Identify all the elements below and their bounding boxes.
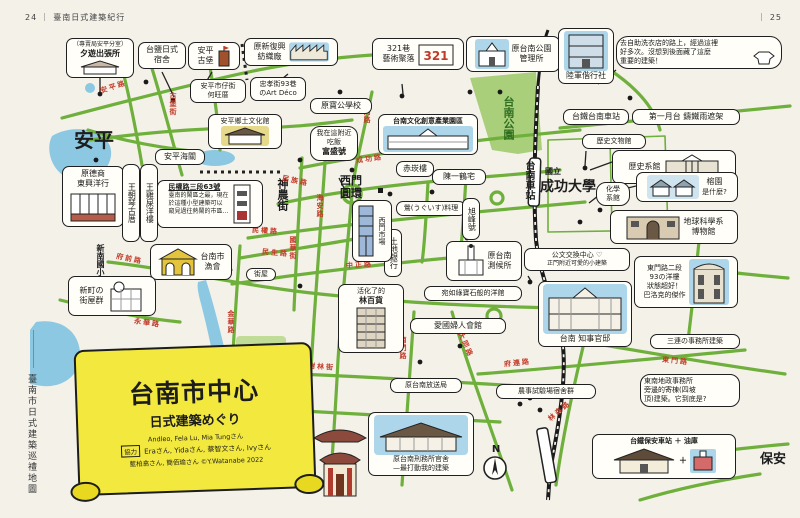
area-label-anping: 安平: [74, 124, 114, 153]
magistrate-residence-illustration: [543, 284, 627, 334]
observatory-tower-illustration: [457, 244, 485, 278]
callout-platform-canopy: 第一月台 鑄鐵雨遮架: [632, 109, 740, 125]
callout-shinmachi-shophouses: 新町の 街屋群: [68, 276, 156, 316]
map-title-banner: 台南市中心 日式建築めぐり Andleo, Fela Lu, Mia Tungさ…: [74, 342, 317, 496]
callout-minquan-63: 民權路三段63號 臺南的鬧區之最，現在 於這種小型建築可以 窺見過往熱鬧的市區…: [157, 180, 263, 228]
page-number-left: 24: [25, 13, 37, 22]
callout-fusheng-hao: 我在這附近 吃飯 富盛號: [310, 126, 358, 161]
prison-dorm-illustration: [374, 415, 468, 455]
callout-history-artifacts-hall: 歷史文物館: [582, 134, 646, 149]
road-label-jinhua-rd: 金華路: [226, 310, 236, 334]
callout-army-club: 陸軍偕行社: [558, 28, 614, 84]
book-title: 臺南日式建築紀行: [53, 13, 125, 22]
sawtooth-factory-illustration: [289, 41, 329, 63]
callout-chikan-tower: 赤崁樓: [396, 161, 434, 177]
callout-xiyou-outpost: （專賣局安平分室） 夕遊出張所: [66, 38, 134, 78]
compass-rose-icon: [482, 455, 508, 481]
army-club-illustration: [564, 31, 608, 71]
fishery-hall-illustration: [158, 247, 198, 277]
folk-museum-illustration: [221, 126, 269, 146]
road-label-haian-rd: 海安路: [315, 194, 325, 218]
callout-ximen-market: 西門市場: [352, 200, 392, 262]
compass-n-label: N: [482, 444, 510, 455]
colonnade-illustration: [68, 190, 118, 224]
map-title: 台南市中心: [128, 370, 259, 411]
road-label-guohua-st: 國華街: [288, 236, 298, 260]
ximen-market-illustration: [358, 205, 374, 257]
spine-caption: 臺南市日式建築巡禮地圖: [25, 374, 38, 495]
callout-anping-fort: 安平 古堡: [188, 42, 240, 70]
callout-anping-folk-museum: 安平鄉土文化館: [208, 114, 282, 149]
callout-tra-tainan-station: 台鐵台南車站: [563, 109, 629, 125]
coop-label: 協力: [121, 444, 140, 457]
svg-text:321: 321: [423, 49, 448, 63]
header-divider: ｜: [41, 13, 50, 22]
callout-land-office-note: 東南地政事務所 旁邊的寄棟(四坡 頂)建築。它到底是?: [640, 374, 740, 407]
callout-anping-customs: 安平海關: [155, 149, 205, 165]
callout-wang-chaoqin-house: 王朝琴古厝: [122, 164, 140, 242]
callout-textile-factory: 原新復興 紡織廠: [244, 38, 338, 66]
park-office-illustration: [475, 39, 509, 69]
callout-hayashi-department-store: 活化了的 林百貨: [338, 284, 404, 353]
callout-hewang-house: 安平市仔街 何旺厝: [190, 79, 246, 103]
area-label-tainan-station: 台南車站: [521, 160, 536, 200]
callout-agri-dorms: 農事試驗場宿舍群: [496, 384, 596, 399]
oil-depot-illustration: [690, 449, 716, 473]
station-house-illustration: [612, 446, 676, 476]
callout-park-office: 原台南公園 管理所: [466, 36, 560, 72]
callout-taiyan-dorm: 台鹽日式 宿舍: [138, 42, 186, 69]
road-label-gubao-st: 古堡街: [168, 92, 178, 116]
callout-street-house: 街屋: [246, 268, 276, 281]
compass: N: [482, 444, 510, 481]
callout-chen-yihe-house: 陳一鶴宅: [432, 169, 486, 185]
shirt-doodle-icon: [753, 51, 775, 65]
callout-laundry-note: 去自助洗衣店的路上，經過這裡 好多次。沒想到後面藏了這麼 重要的建築！: [616, 36, 782, 69]
corner-building-illustration: [107, 279, 145, 313]
callout-earth-science-museum: 地球科學系 博物館: [610, 210, 738, 244]
callout-document-exchange: 公文交換中心 ♡ 正門附近可愛的小建築: [524, 248, 630, 271]
spine-rule: [33, 330, 34, 368]
callout-tait-merchant-house: 原德商 東興洋行: [62, 166, 124, 227]
callout-prison-dorm: 原台南刑務所官舍 —最打動我的建築: [368, 412, 474, 476]
book-spread-map-page: 24 ｜ 臺南日式建築紀行 ｜ 25 臺南市日式建築巡禮地圖 安平 神農街 西門…: [0, 0, 800, 518]
page-header-right: ｜ 25: [757, 12, 782, 23]
callout-xufeng-hao: 旭峰號: [462, 198, 480, 240]
gate-321-illustration: 321: [418, 41, 454, 67]
callout-wang-jishi-mansion: 王雞屎洋樓: [140, 164, 158, 242]
callout-chemistry-hall: 化學 系館: [596, 182, 630, 206]
page-header-left: 24 ｜ 臺南日式建築紀行: [25, 12, 125, 23]
page-number-right: 25: [770, 13, 782, 22]
callout-patriotic-womens-hall: 愛國婦人會館: [410, 318, 506, 334]
area-label-baoan: 保安: [760, 448, 786, 467]
callout-broadcast-bureau: 原台南放送局: [390, 378, 462, 393]
baroque-facade-illustration: [689, 259, 729, 305]
callout-baoan-station: 台鐵保安車站 ＋ 油庫 ＋: [592, 434, 736, 479]
callout-banyan-garden: 榕園 是什麼?: [636, 172, 738, 202]
area-label-xinnan-school: 新南國小: [95, 244, 106, 276]
callout-emerald-mansion: 宛如綠寶石般的洋館: [424, 286, 522, 301]
area-label-ximen-circle: 西門圓環: [338, 174, 364, 200]
earth-science-illustration: [625, 213, 681, 241]
callout-fishermens-association: 台南市 漁會: [150, 244, 232, 280]
house-illustration: [79, 59, 121, 75]
area-label-tainan-park: 台南公園: [500, 96, 516, 140]
callout-sanlien-office: 三連の事務所建築: [650, 334, 740, 349]
area-label-ncku: 成功大學: [540, 176, 596, 196]
creative-park-illustration: [383, 126, 473, 152]
header-divider-right: ｜: [757, 13, 766, 22]
callout-cultural-creative-park: 台南文化創意產業園區: [378, 114, 478, 155]
plus-sign: ＋: [679, 456, 687, 466]
callout-weather-observatory: 原台南 測候所: [446, 241, 522, 281]
callout-magistrate-residence: 台南 知事官邸: [538, 281, 632, 347]
callout-bao-public-school: 原寶公學校: [310, 98, 372, 114]
callout-321-art-village: 321巷 藝術聚落 321: [372, 38, 464, 70]
fort-illustration: [217, 45, 231, 67]
hayashi-store-illustration: [354, 306, 388, 350]
callout-zhongxiao-artdeco: 忠孝街93巷 のArt Déco: [250, 77, 306, 101]
callout-uguisu-ryori: 鶯(うぐいす)料理: [396, 201, 466, 216]
shophouse-illustration: [232, 183, 252, 225]
map-subtitle: 日式建築めぐり: [149, 408, 241, 430]
banyan-houses-illustration: [647, 175, 699, 199]
callout-dongmen-baroque: 東門路二段 93の洋樓 狀態超好！ 巴洛克的傑作: [634, 256, 738, 308]
